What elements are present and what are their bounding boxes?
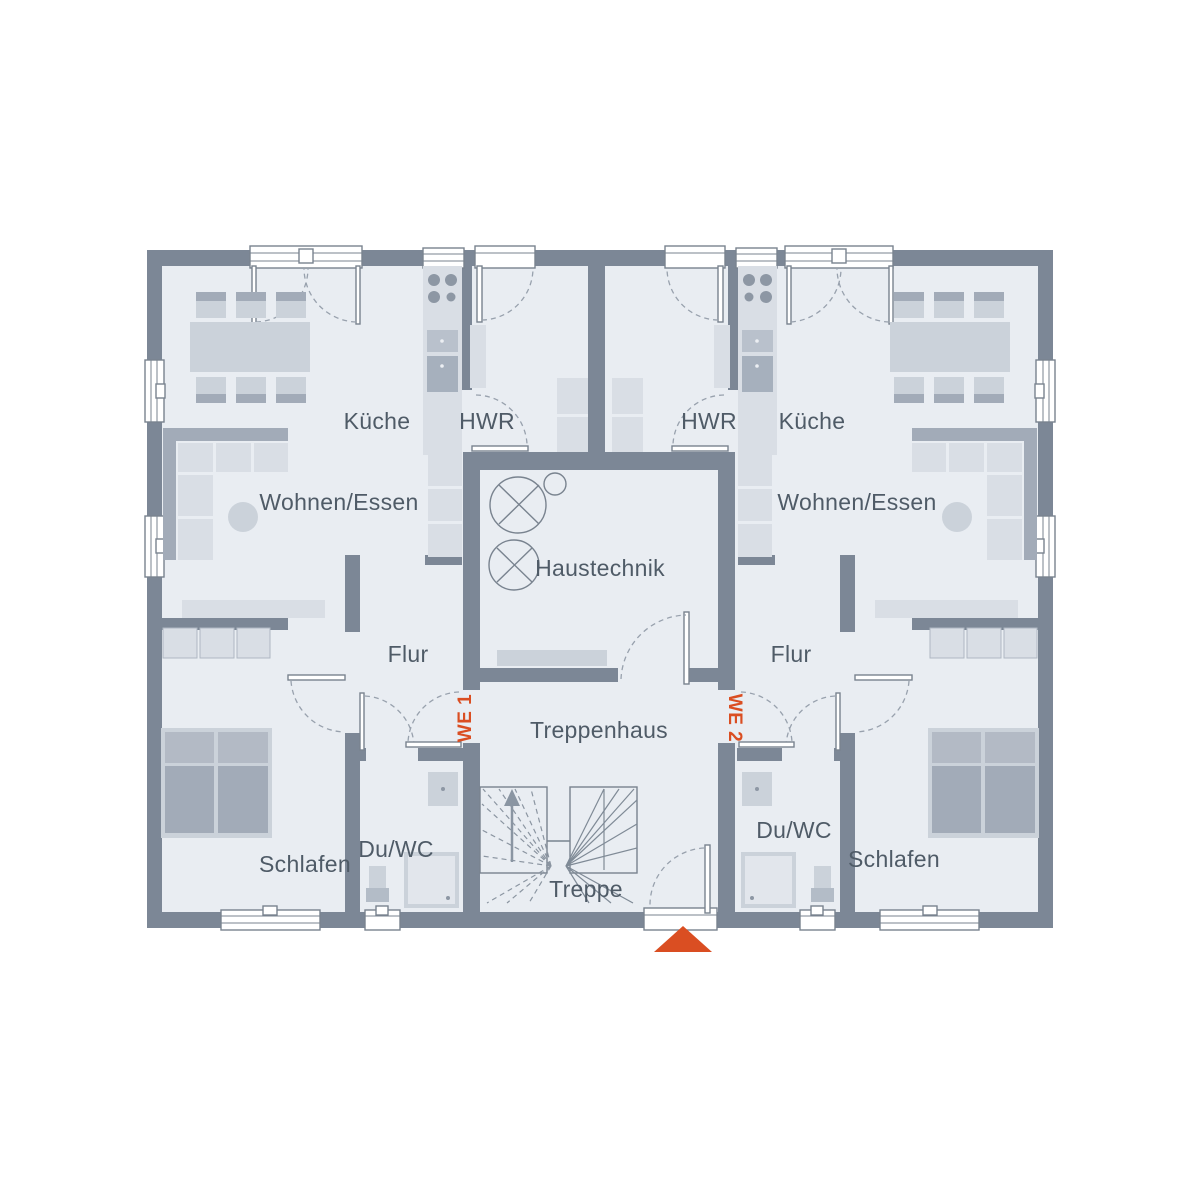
kitchen-window-unit2 xyxy=(736,248,777,268)
hwr-door-unit1 xyxy=(472,446,528,451)
wardrobe xyxy=(163,628,270,658)
window-bedroom-unit2 xyxy=(880,906,979,930)
kitchen-stove xyxy=(738,266,777,455)
window-right-lower xyxy=(1035,516,1055,577)
shelf xyxy=(497,650,607,666)
unit-label-we1: WE 1 xyxy=(455,694,476,742)
window-bedroom-unit1 xyxy=(221,906,320,930)
window-left-upper xyxy=(145,360,165,422)
window-left-lower xyxy=(145,516,165,577)
kitchen-window-unit1 xyxy=(423,248,464,268)
kitchen-cabinets xyxy=(738,452,772,557)
bed xyxy=(161,728,272,838)
dining-table xyxy=(190,322,310,372)
dining-table xyxy=(890,322,1010,372)
room-label-treppe: Treppe xyxy=(549,876,623,902)
haustechnik-door xyxy=(684,612,689,684)
washbasin xyxy=(742,772,772,806)
toilet xyxy=(811,866,834,902)
unit-label-we2: WE 2 xyxy=(724,694,745,742)
duwc-door-unit2 xyxy=(836,693,840,750)
room-label-kueche-unit2: Küche xyxy=(779,408,846,434)
door-leaf xyxy=(356,266,360,324)
window-duwc-unit2 xyxy=(800,906,835,930)
bedroom-door-unit1 xyxy=(288,675,345,680)
kitchen-stove xyxy=(423,266,462,455)
window-right-upper xyxy=(1035,360,1055,422)
hwr-door-unit2 xyxy=(672,446,728,451)
bedroom-door-unit2 xyxy=(855,675,912,680)
room-label-duwc-unit2: Du/WC xyxy=(756,817,832,843)
room-label-schlafen-unit2: Schlafen xyxy=(848,846,940,872)
entry-door-unit2 xyxy=(739,742,794,747)
shower xyxy=(741,852,796,908)
room-label-flur-unit1: Flur xyxy=(388,641,429,667)
room-label-treppenhaus: Treppenhaus xyxy=(530,717,668,743)
sideboard xyxy=(875,600,1018,618)
sideboard xyxy=(182,600,325,618)
wardrobe xyxy=(930,628,1037,658)
room-label-hwr-unit1: HWR xyxy=(459,408,515,434)
toilet xyxy=(366,866,389,902)
side-table xyxy=(228,502,258,532)
floor-plan-page: Küche HWR Wohnen/Essen Flur Schlafen Du/… xyxy=(0,0,1200,1200)
room-label-kueche-unit1: Küche xyxy=(344,408,411,434)
entry-door-unit1 xyxy=(406,742,461,747)
room-label-hwr-unit2: HWR xyxy=(681,408,737,434)
side-table xyxy=(942,502,972,532)
room-label-schlafen-unit1: Schlafen xyxy=(259,851,351,877)
window-duwc-unit1 xyxy=(365,906,400,930)
bed xyxy=(928,728,1039,838)
room-label-duwc-unit1: Du/WC xyxy=(358,836,434,862)
room-label-wohnen-unit2: Wohnen/Essen xyxy=(777,489,936,515)
washbasin xyxy=(428,772,458,806)
room-label-haustechnik: Haustechnik xyxy=(535,555,665,581)
kitchen-cabinets xyxy=(428,452,462,557)
room-label-wohnen-unit1: Wohnen/Essen xyxy=(259,489,418,515)
room-label-flur-unit2: Flur xyxy=(771,641,812,667)
floor-plan-drawing: Küche HWR Wohnen/Essen Flur Schlafen Du/… xyxy=(0,0,1200,1200)
duwc-door-unit1 xyxy=(360,693,364,750)
